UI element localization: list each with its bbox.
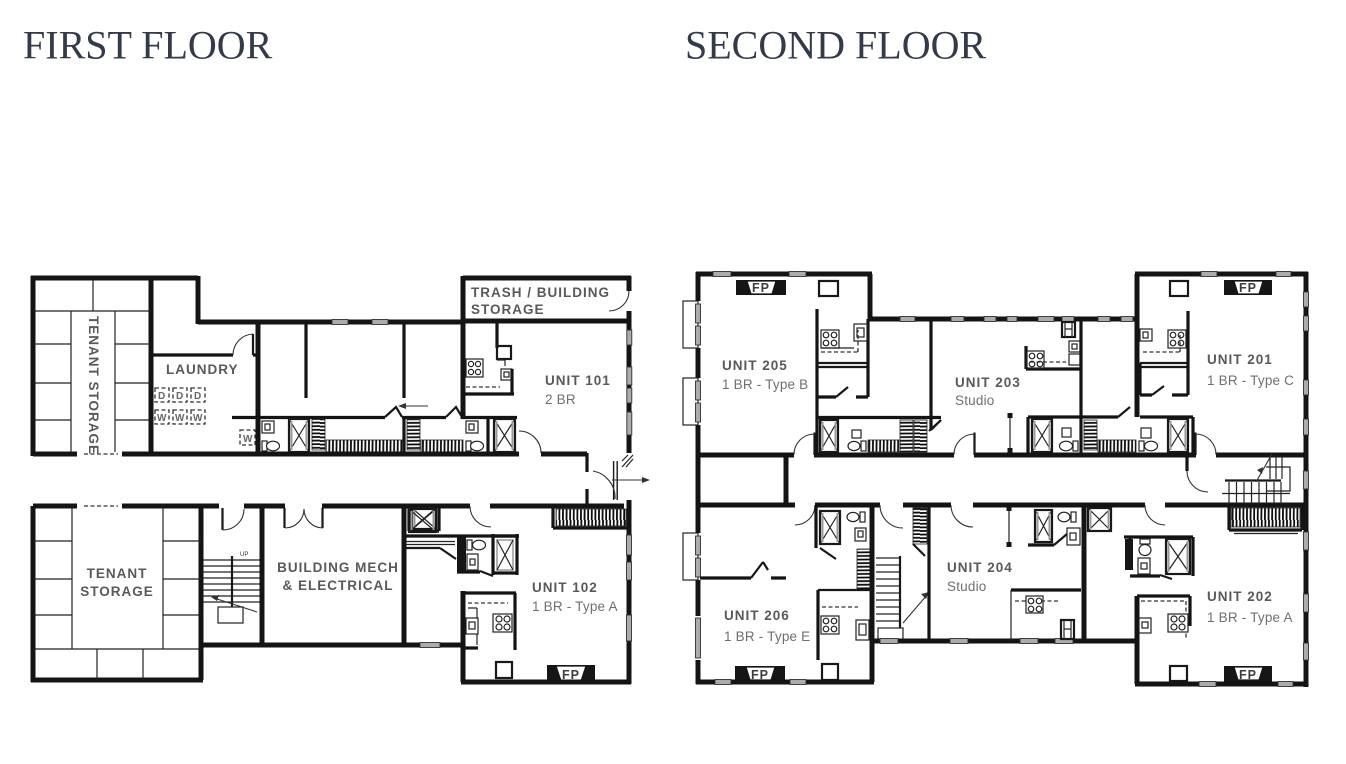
svg-text:UNIT 203: UNIT 203	[955, 375, 1021, 390]
svg-text:UP: UP	[240, 552, 248, 558]
svg-text:& ELECTRICAL: & ELECTRICAL	[283, 578, 394, 593]
svg-text:UNIT 202: UNIT 202	[1207, 589, 1273, 604]
svg-text:1 BR - Type C: 1 BR - Type C	[1207, 373, 1294, 388]
svg-text:TRASH / BUILDING: TRASH / BUILDING	[471, 285, 610, 300]
svg-text:D: D	[176, 391, 183, 402]
svg-text:W: W	[157, 413, 167, 424]
svg-text:UNIT 102: UNIT 102	[532, 580, 598, 595]
svg-text:FP: FP	[1239, 281, 1257, 295]
svg-text:D: D	[158, 391, 165, 402]
svg-text:Studio: Studio	[955, 393, 994, 408]
svg-text:UNIT 201: UNIT 201	[1207, 352, 1273, 367]
svg-text:1 BR - Type E: 1 BR - Type E	[724, 629, 810, 644]
svg-text:UNIT 205: UNIT 205	[722, 358, 788, 373]
svg-text:UNIT 206: UNIT 206	[724, 608, 790, 623]
svg-text:W: W	[243, 434, 253, 445]
svg-text:2 BR: 2 BR	[545, 392, 576, 407]
svg-text:W: W	[175, 413, 185, 424]
svg-text:FIRST FLOOR: FIRST FLOOR	[23, 23, 273, 68]
svg-text:W: W	[193, 413, 203, 424]
svg-text:UNIT 101: UNIT 101	[545, 373, 611, 388]
svg-text:1 BR - Type B: 1 BR - Type B	[722, 377, 808, 392]
svg-text:LAUNDRY: LAUNDRY	[166, 362, 239, 377]
svg-text:D: D	[194, 391, 201, 402]
svg-text:1 BR - Type A: 1 BR - Type A	[532, 599, 618, 614]
svg-text:STORAGE: STORAGE	[471, 302, 545, 317]
svg-text:STORAGE: STORAGE	[80, 584, 154, 599]
svg-text:Studio: Studio	[947, 579, 986, 594]
svg-text:TENANT STORAGE: TENANT STORAGE	[86, 316, 101, 455]
svg-text:UNIT 204: UNIT 204	[947, 560, 1013, 575]
svg-text:SECOND FLOOR: SECOND FLOOR	[685, 23, 986, 68]
svg-text:1 BR - Type A: 1 BR - Type A	[1207, 610, 1293, 625]
svg-text:BUILDING MECH: BUILDING MECH	[277, 560, 399, 575]
svg-text:FP: FP	[752, 281, 770, 295]
svg-text:TENANT: TENANT	[87, 566, 148, 581]
svg-text:FP: FP	[1239, 668, 1257, 682]
